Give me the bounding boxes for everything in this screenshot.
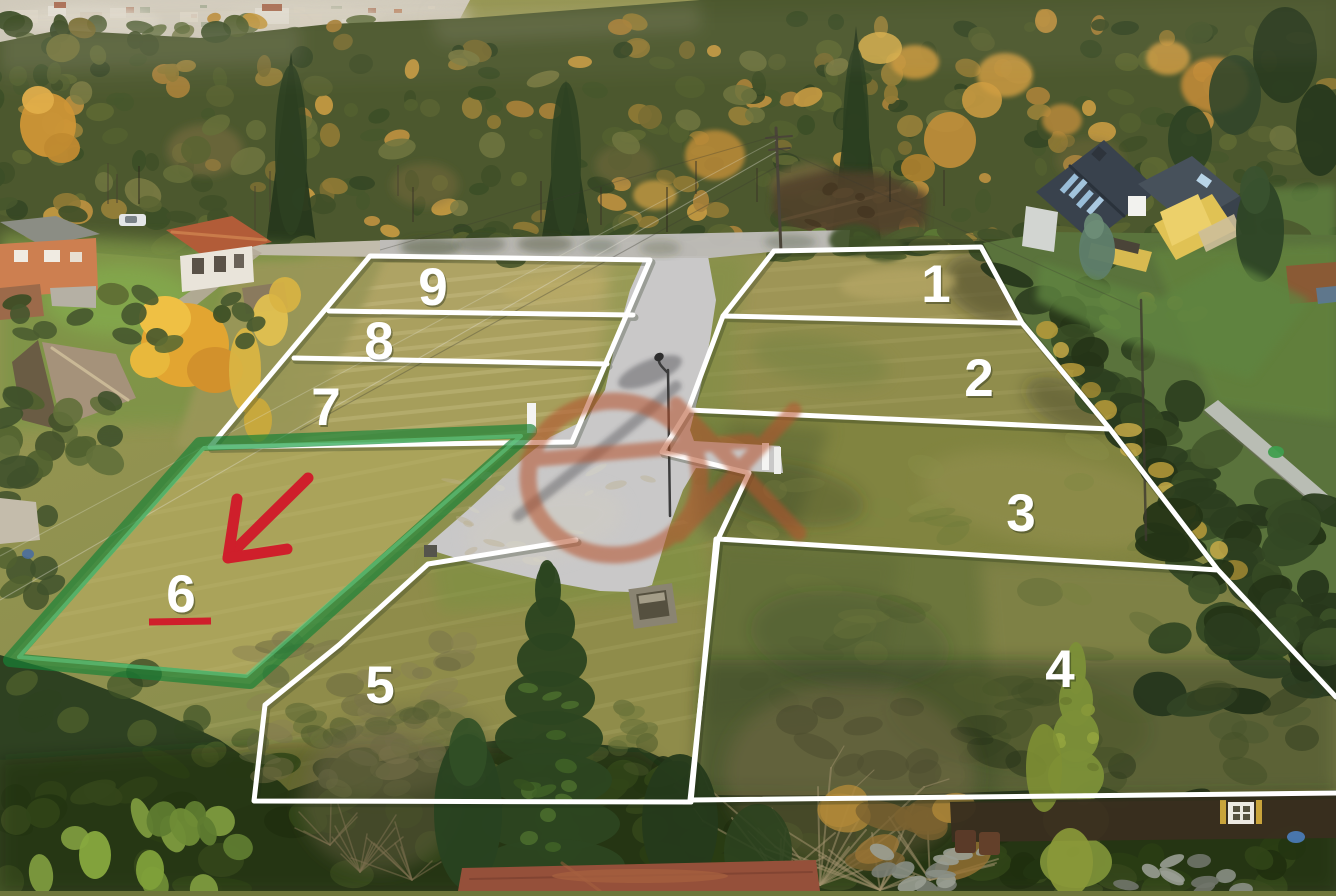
svg-text:8: 8 bbox=[364, 312, 393, 371]
svg-text:4: 4 bbox=[1045, 640, 1075, 699]
svg-text:2: 2 bbox=[964, 349, 993, 408]
svg-text:3: 3 bbox=[1006, 484, 1035, 543]
svg-text:9: 9 bbox=[418, 258, 447, 317]
svg-text:6: 6 bbox=[166, 565, 195, 624]
svg-text:1: 1 bbox=[921, 255, 950, 314]
svg-text:5: 5 bbox=[365, 656, 394, 715]
svg-text:7: 7 bbox=[311, 378, 340, 437]
